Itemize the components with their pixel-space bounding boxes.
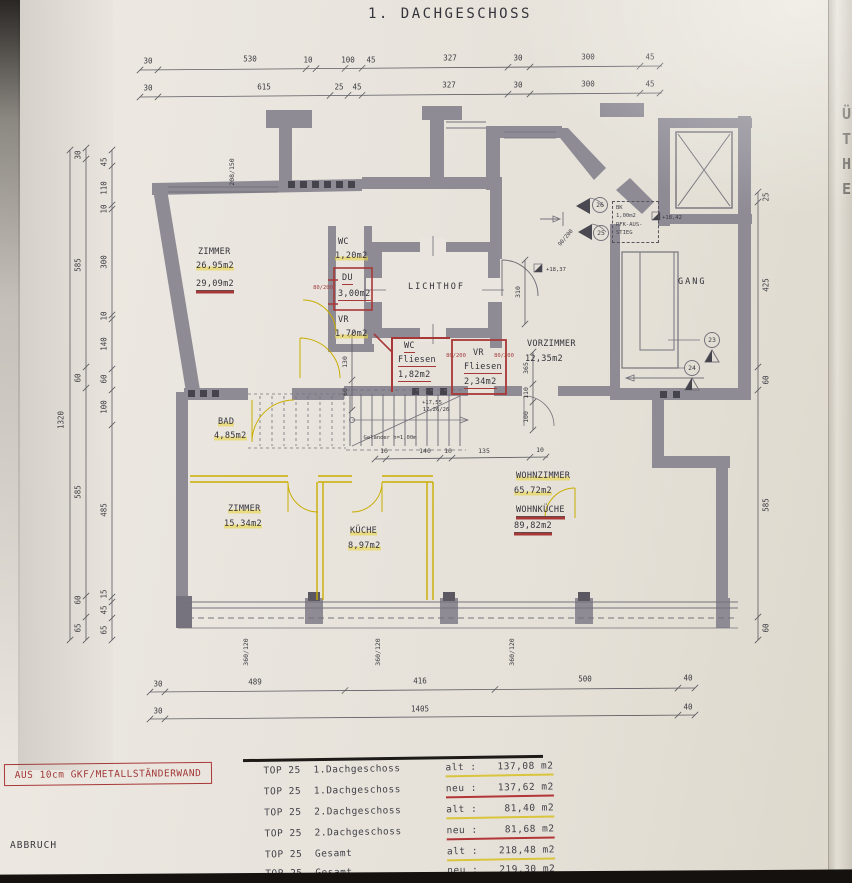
label-stair-3: 135 xyxy=(478,447,490,455)
table-value-cell: neu :81,68 m2 xyxy=(446,823,554,840)
floorplan-svg xyxy=(0,0,852,883)
label-left_total-0: 1320 xyxy=(57,411,66,429)
room-vr-mid: VR xyxy=(473,349,484,358)
table-top-cell: TOP 25 xyxy=(263,765,318,777)
label-stair-1: 140 xyxy=(419,447,431,455)
label-left_inner-7: 100 xyxy=(100,400,109,414)
label-stair_v-0: 130 xyxy=(341,356,349,368)
room-zimmer-nw-area-new: 29,09m2 xyxy=(196,280,234,291)
edge-letter: H xyxy=(842,155,851,173)
table-top-cell: TOP 25 xyxy=(264,828,319,840)
label-annotations-window_208_150: 208/150 xyxy=(228,158,236,185)
label-top2-3: 45 xyxy=(352,83,361,92)
table-value-cell: alt :81,40 m2 xyxy=(446,802,554,819)
edge-letter: Ü xyxy=(842,105,851,123)
room-bad: BAD xyxy=(218,418,234,427)
label-right-0: 25 xyxy=(762,192,771,201)
label-mid_v-0: 365 xyxy=(522,362,530,374)
room-lichthof: LICHTHOF xyxy=(408,283,465,292)
label-top2-5: 30 xyxy=(513,81,522,90)
label-left_inner-11: 65 xyxy=(100,625,109,634)
bk-line-4: STIEG xyxy=(616,229,658,237)
label-bottom2-1: 1405 xyxy=(411,705,429,714)
table-value: 137,62 m2 xyxy=(498,781,554,793)
label-bottom1-3: 500 xyxy=(578,675,592,684)
room-vorzimmer: VORZIMMER xyxy=(527,340,576,349)
label-left_inner-0: 45 xyxy=(100,157,109,166)
label-top1-3: 100 xyxy=(341,56,355,65)
label-stair-2: 10 xyxy=(444,447,452,455)
label-annotations-elev_2: +18,37 xyxy=(546,267,566,273)
label-bottom1-2: 416 xyxy=(413,677,427,686)
room-vr-nw: VR xyxy=(338,316,349,325)
label-top2-6: 300 xyxy=(581,80,595,89)
bk-line-3: RFK-AUS- xyxy=(616,221,658,229)
table-kind: alt : xyxy=(447,846,478,858)
label-mid_v-2: 100 xyxy=(522,411,530,423)
room-vorzimmer-area: 12,35m2 xyxy=(525,355,563,364)
table-kind: neu : xyxy=(446,825,477,837)
bk-annotation-box: BK 1,00m2 RFK-AUS- STIEG xyxy=(612,201,659,243)
label-stair-0: 10 xyxy=(380,447,388,455)
label-annotations-door_80_200: 80/200 xyxy=(313,285,333,291)
room-wohnzimmer-area: 65,72m2 xyxy=(514,487,552,496)
label-right-4: 60 xyxy=(762,623,771,632)
table-value-cell: neu :137,62 m2 xyxy=(446,781,554,798)
room-kueche-area: 8,97m2 xyxy=(348,542,381,551)
label-left_inner-3: 300 xyxy=(100,255,109,269)
label-annotations-stair_elev_1: +17,55 xyxy=(422,400,442,406)
room-vr-mid-area: 2,34m2 xyxy=(464,378,497,389)
label-markers-m26: 26 xyxy=(596,201,604,209)
label-top2-1: 615 xyxy=(257,83,271,92)
room-du: DU xyxy=(342,274,353,285)
table-kind: alt : xyxy=(446,804,477,816)
label-left_outer-3: 585 xyxy=(74,485,83,499)
table-floor-cell: 2.Dachgeschoss xyxy=(314,825,449,838)
table-top-cell: TOP 25 xyxy=(265,849,320,861)
label-markers-m25: 25 xyxy=(597,229,605,237)
table-value-cell: alt :218,48 m2 xyxy=(447,844,555,861)
label-left_inner-4: 10 xyxy=(100,311,109,320)
label-top2-2: 25 xyxy=(334,83,343,92)
label-windows-2: 360/120 xyxy=(508,638,516,665)
label-annotations-stair_elev_2: 17,26/26 xyxy=(423,407,450,413)
label-markers-m24: 24 xyxy=(688,364,696,372)
label-right-1: 425 xyxy=(762,278,771,292)
label-annotations-elev_1: +18,42 xyxy=(662,215,682,221)
label-left_inner-5: 140 xyxy=(100,337,109,351)
table-value: 81,40 m2 xyxy=(504,802,554,814)
table-floor-cell: Gesamt xyxy=(315,846,450,859)
label-left_inner-9: 15 xyxy=(100,589,109,598)
room-vr-mid-finish: Fliesen xyxy=(464,363,502,374)
room-wc-nw: WC xyxy=(338,238,349,247)
label-left_outer-0: 30 xyxy=(74,150,83,159)
label-top1-8: 45 xyxy=(645,53,654,62)
label-top1-4: 45 xyxy=(366,56,375,65)
label-bottom2-2: 40 xyxy=(683,703,692,712)
label-top1-5: 327 xyxy=(443,54,457,63)
label-left_inner-2: 10 xyxy=(100,204,109,213)
label-annotations-door_80_200: 80/200 xyxy=(446,353,466,359)
bk-line-1: BK xyxy=(616,204,658,212)
label-bottom1-1: 489 xyxy=(248,678,262,687)
label-top2-4: 327 xyxy=(442,81,456,90)
table-value: 218,48 m2 xyxy=(499,844,555,856)
room-du-area: 3,00m2 xyxy=(338,290,371,301)
label-left_inner-10: 45 xyxy=(100,605,109,614)
table-floor-cell: 2.Dachgeschoss xyxy=(314,804,449,817)
table-top-cell: TOP 25 xyxy=(264,786,319,798)
label-top1-2: 10 xyxy=(303,56,312,65)
room-wohnkueche: WOHNKÜCHE xyxy=(516,506,565,517)
label-left_inner-1: 110 xyxy=(100,181,109,195)
label-bottom2-0: 30 xyxy=(153,707,162,716)
label-left_inner-6: 60 xyxy=(100,374,109,383)
room-wohnkueche-area: 89,82m2 xyxy=(514,522,552,533)
room-wc-mid-area: 1,82m2 xyxy=(398,371,431,382)
label-annotations-door_80_200: 80/200 xyxy=(494,353,514,359)
label-top1-0: 30 xyxy=(143,57,152,66)
room-wc-mid-finish: Fliesen xyxy=(398,356,436,367)
table-floor-cell: 1.Dachgeschoss xyxy=(314,783,449,796)
room-vr-nw-area: 1,70m2 xyxy=(335,330,368,339)
label-top2-0: 30 xyxy=(143,84,152,93)
label-left_outer-5: 65 xyxy=(74,623,83,632)
room-zimmer-sw: ZIMMER xyxy=(228,505,261,514)
table-kind: neu : xyxy=(446,783,477,795)
table-value: 81,68 m2 xyxy=(505,823,555,835)
label-bottom1-0: 30 xyxy=(153,680,162,689)
label-bottom1-4: 40 xyxy=(683,674,692,683)
room-kueche: KÜCHE xyxy=(350,527,377,536)
label-annotations-gelaender: Geländer h=1,00m xyxy=(364,435,417,441)
table-value: 137,08 m2 xyxy=(497,760,553,772)
label-stair-4: 10 xyxy=(536,446,544,454)
label-right-2: 60 xyxy=(762,375,771,384)
label-left_outer-4: 60 xyxy=(74,595,83,604)
label-mid_v-1: 110 xyxy=(522,387,530,399)
label-markers-m23: 23 xyxy=(708,336,716,344)
room-zimmer-sw-area: 15,34m2 xyxy=(224,520,262,529)
label-vor_v-0: 310 xyxy=(514,286,522,298)
legend-wall-note: AUS 10cm GKF/METALLSTÄNDERWAND xyxy=(4,762,212,786)
room-wc-mid: WC xyxy=(404,342,415,353)
edge-letter: E xyxy=(842,180,851,198)
room-bad-area: 4,85m2 xyxy=(214,432,247,441)
grey-linework xyxy=(168,122,738,628)
room-zimmer-nw-area-old: 26,95m2 xyxy=(196,262,234,271)
legend-abbruch: ABBRUCH xyxy=(10,840,57,851)
label-left_inner-8: 485 xyxy=(100,503,109,517)
table-kind: alt : xyxy=(445,762,476,774)
label-windows-1: 360/120 xyxy=(374,638,382,665)
room-gang: GANG xyxy=(678,278,706,287)
edge-letter: T xyxy=(842,130,851,148)
label-top1-1: 530 xyxy=(243,55,257,64)
room-wohnzimmer: WOHNZIMMER xyxy=(516,472,570,481)
label-top2-7: 45 xyxy=(645,80,654,89)
room-wc-nw-area: 1,20m2 xyxy=(335,252,368,261)
label-windows-0: 360/120 xyxy=(242,638,250,665)
label-left_outer-2: 60 xyxy=(74,373,83,382)
table-top-cell: TOP 25 xyxy=(264,807,319,819)
table-value-cell: alt :137,08 m2 xyxy=(445,760,553,777)
scanned-floorplan-page: 1. DACHGESCHOSS xyxy=(0,0,852,883)
room-zimmer-nw: ZIMMER xyxy=(198,248,231,257)
label-right-3: 585 xyxy=(762,498,771,512)
label-left_outer-1: 585 xyxy=(74,258,83,272)
bk-line-2: 1,00m2 xyxy=(616,212,658,220)
label-stair_v-1: 60 xyxy=(341,388,349,396)
label-top1-6: 30 xyxy=(513,54,522,63)
label-top1-7: 300 xyxy=(581,53,595,62)
table-floor-cell: 1.Dachgeschoss xyxy=(313,762,448,775)
